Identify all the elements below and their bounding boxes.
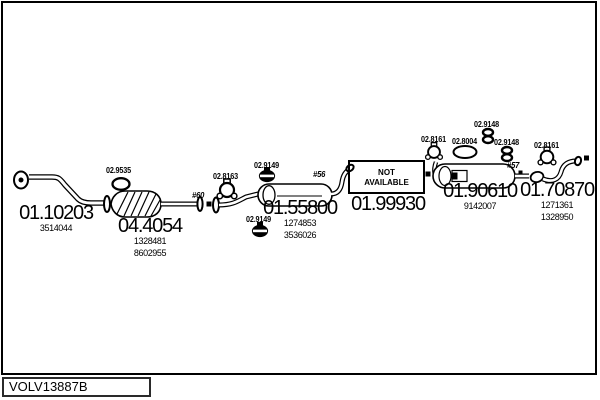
part-front-pipe: 01.10203 3514044 xyxy=(12,203,100,235)
catalytic-converter-drawing xyxy=(104,191,203,217)
joint-marker xyxy=(426,172,431,177)
pipe-clamp-icon xyxy=(217,179,237,199)
part-over-axle-pipe: 01.99930 xyxy=(348,194,428,214)
not-available-box: NOT AVAILABLE xyxy=(348,160,425,194)
oe-number: 8602955 xyxy=(112,248,188,260)
not-available-line2: AVAILABLE xyxy=(350,178,423,188)
joint-marker xyxy=(207,202,212,207)
diameter-label: #56 xyxy=(313,169,325,179)
drawing-code: VOLV13887B xyxy=(9,379,88,394)
fitting-label: 02.8161 xyxy=(421,134,446,144)
part-tail-pipe: 01.70870 1271361 1328950 xyxy=(514,180,600,223)
part-number: 01.10203 xyxy=(12,203,100,223)
oe-number: 9142007 xyxy=(436,201,524,213)
gasket-ring-icon xyxy=(113,178,130,190)
part-number: 04.4054 xyxy=(112,216,188,236)
part-number: 01.90610 xyxy=(436,181,524,201)
fitting-label: 02.9148 xyxy=(474,119,499,129)
part-number: 01.70870 xyxy=(514,180,600,200)
part-rear-silencer: 01.90610 9142007 xyxy=(436,181,524,213)
gasket-ring-icon xyxy=(454,146,477,158)
double-ring-seal-icon xyxy=(502,147,512,161)
oe-number: 1271361 xyxy=(514,200,600,212)
flange-gasket xyxy=(104,196,110,212)
diameter-label: #57 xyxy=(507,160,519,170)
exhaust-catalog-page: 01.10203 3514044 04.4054 1328481 8602955… xyxy=(0,0,600,400)
oe-number: 3514044 xyxy=(12,223,100,235)
fitting-label: 02.8161 xyxy=(534,140,559,150)
pipe-clamp-icon xyxy=(426,143,443,160)
fitting-label: 02.8163 xyxy=(213,171,238,181)
fitting-label: 02.8004 xyxy=(452,136,477,146)
oe-number: 3536026 xyxy=(256,230,344,242)
front-pipe-drawing xyxy=(14,172,106,204)
fitting-label: 02.9149 xyxy=(246,214,271,224)
fitting-label: 02.9149 xyxy=(254,160,279,170)
double-ring-seal-icon xyxy=(483,129,493,143)
drawing-code-box: VOLV13887B xyxy=(2,377,151,397)
diameter-label: #60 xyxy=(192,190,204,200)
oe-number: 1328950 xyxy=(514,212,600,224)
fitting-label: 02.9148 xyxy=(494,137,519,147)
not-available-line1: NOT xyxy=(350,168,423,178)
oe-number: 1328481 xyxy=(112,236,188,248)
part-number: 01.99930 xyxy=(348,194,428,214)
fitting-label: 02.9535 xyxy=(106,165,131,175)
part-catalyst: 04.4054 1328481 8602955 xyxy=(112,216,188,259)
